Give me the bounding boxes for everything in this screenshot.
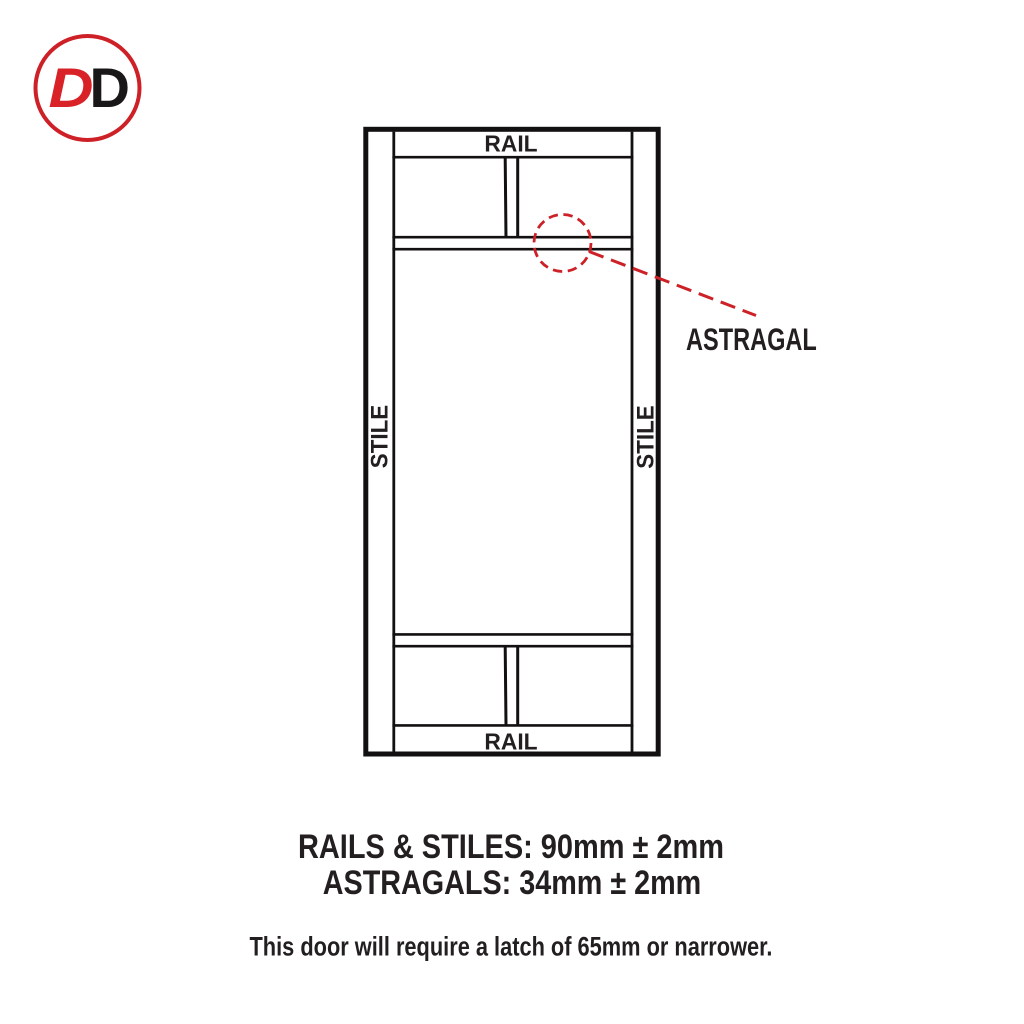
svg-text:D: D bbox=[90, 56, 130, 119]
svg-text:RAIL: RAIL bbox=[484, 130, 537, 156]
svg-text:This door will require a latch: This door will require a latch of 65mm o… bbox=[250, 931, 773, 961]
svg-text:STILE: STILE bbox=[632, 405, 659, 468]
svg-text:ASTRAGAL: ASTRAGAL bbox=[686, 321, 817, 357]
svg-text:ASTRAGALS: 34mm ± 2mm: ASTRAGALS: 34mm ± 2mm bbox=[323, 864, 702, 902]
svg-text:D: D bbox=[49, 56, 94, 119]
svg-text:STILE: STILE bbox=[366, 405, 393, 468]
svg-text:RAILS & STILES: 90mm ± 2mm: RAILS & STILES: 90mm ± 2mm bbox=[298, 828, 724, 866]
svg-text:RAIL: RAIL bbox=[484, 728, 537, 754]
